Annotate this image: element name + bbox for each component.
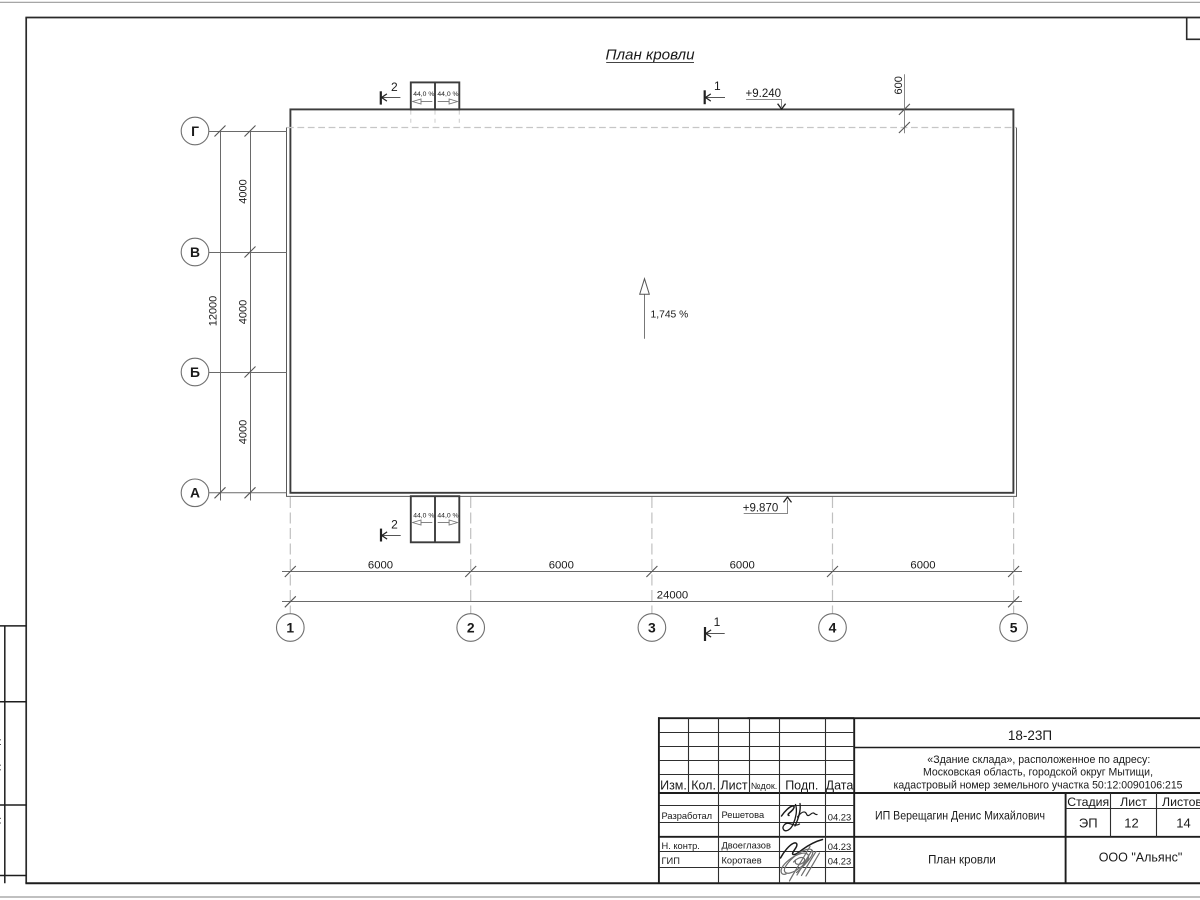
svg-text:3: 3 [648, 619, 656, 635]
svg-text:Б: Б [190, 364, 200, 380]
svg-text:1,745 %: 1,745 % [651, 309, 689, 320]
svg-text:2: 2 [467, 619, 475, 635]
svg-text:1: 1 [714, 615, 721, 629]
svg-text:5: 5 [1010, 619, 1018, 635]
svg-text:Коротаев: Коротаев [722, 855, 762, 865]
svg-text:+9.870: +9.870 [743, 502, 779, 514]
svg-text:12000: 12000 [208, 296, 220, 327]
svg-text:Инв. № подл.: Инв. № подл. [0, 809, 2, 871]
svg-text:14: 14 [1176, 816, 1190, 831]
svg-text:6000: 6000 [549, 560, 574, 572]
svg-text:12: 12 [1124, 816, 1138, 831]
svg-text:04.23: 04.23 [828, 856, 851, 867]
svg-text:4: 4 [829, 619, 837, 635]
svg-text:Московская область, городской: Московская область, городской округ Мыти… [923, 767, 1153, 779]
svg-text:Кол.: Кол. [691, 779, 716, 793]
svg-text:04.23: 04.23 [828, 841, 851, 852]
svg-text:Разработал: Разработал [662, 811, 713, 821]
svg-text:600: 600 [893, 76, 905, 94]
svg-text:24000: 24000 [657, 590, 688, 602]
svg-text:Подп. и дата: Подп. и дата [0, 724, 2, 783]
svg-text:44,0 %: 44,0 % [413, 91, 434, 98]
svg-text:Г: Г [191, 123, 199, 139]
svg-text:План кровли: План кровли [928, 855, 996, 867]
svg-text:кадастровый номер земельного у: кадастровый номер земельного участка 50:… [894, 779, 1183, 791]
svg-text:4000: 4000 [238, 179, 250, 203]
svg-text:План кровли: План кровли [605, 47, 695, 64]
svg-text:Стадия: Стадия [1067, 795, 1109, 809]
svg-text:Лист: Лист [1120, 795, 1147, 809]
svg-text:44,0 %: 44,0 % [437, 91, 458, 98]
svg-text:ИП Верещагин Денис Михайлович: ИП Верещагин Денис Михайлович [875, 810, 1045, 822]
svg-text:ЭП: ЭП [1079, 816, 1098, 831]
svg-text:В: В [190, 244, 200, 260]
svg-text:44,0 %: 44,0 % [413, 512, 434, 519]
svg-text:№док.: №док. [751, 781, 777, 791]
svg-text:44,0 %: 44,0 % [437, 512, 458, 519]
svg-text:А: А [190, 485, 200, 501]
svg-text:Двоеглазов: Двоеглазов [722, 840, 771, 850]
svg-text:«Здание склада», расположенное: «Здание склада», расположенное по адресу… [927, 754, 1150, 766]
svg-text:2: 2 [391, 80, 398, 94]
svg-text:ООО "Альянс": ООО "Альянс" [1099, 851, 1183, 865]
svg-text:ГИП: ГИП [662, 856, 680, 866]
svg-text:6000: 6000 [368, 560, 393, 572]
svg-text:1: 1 [714, 79, 721, 93]
svg-text:04.23: 04.23 [828, 811, 851, 822]
svg-text:Дата: Дата [826, 779, 854, 793]
svg-text:Листов: Листов [1162, 795, 1200, 809]
svg-text:Лист: Лист [720, 779, 747, 793]
svg-text:Решетова: Решетова [722, 810, 765, 820]
svg-text:2: 2 [391, 517, 398, 531]
svg-text:4000: 4000 [238, 300, 250, 324]
svg-text:6000: 6000 [910, 560, 935, 572]
svg-text:Н. контр.: Н. контр. [662, 841, 700, 851]
svg-text:4000: 4000 [238, 420, 250, 444]
svg-text:+9.240: +9.240 [746, 88, 782, 100]
svg-text:1: 1 [286, 619, 294, 635]
svg-text:6000: 6000 [730, 560, 755, 572]
svg-text:Изм.: Изм. [660, 779, 687, 793]
svg-text:18-23П: 18-23П [1008, 728, 1052, 743]
svg-text:Подп.: Подп. [785, 779, 818, 793]
